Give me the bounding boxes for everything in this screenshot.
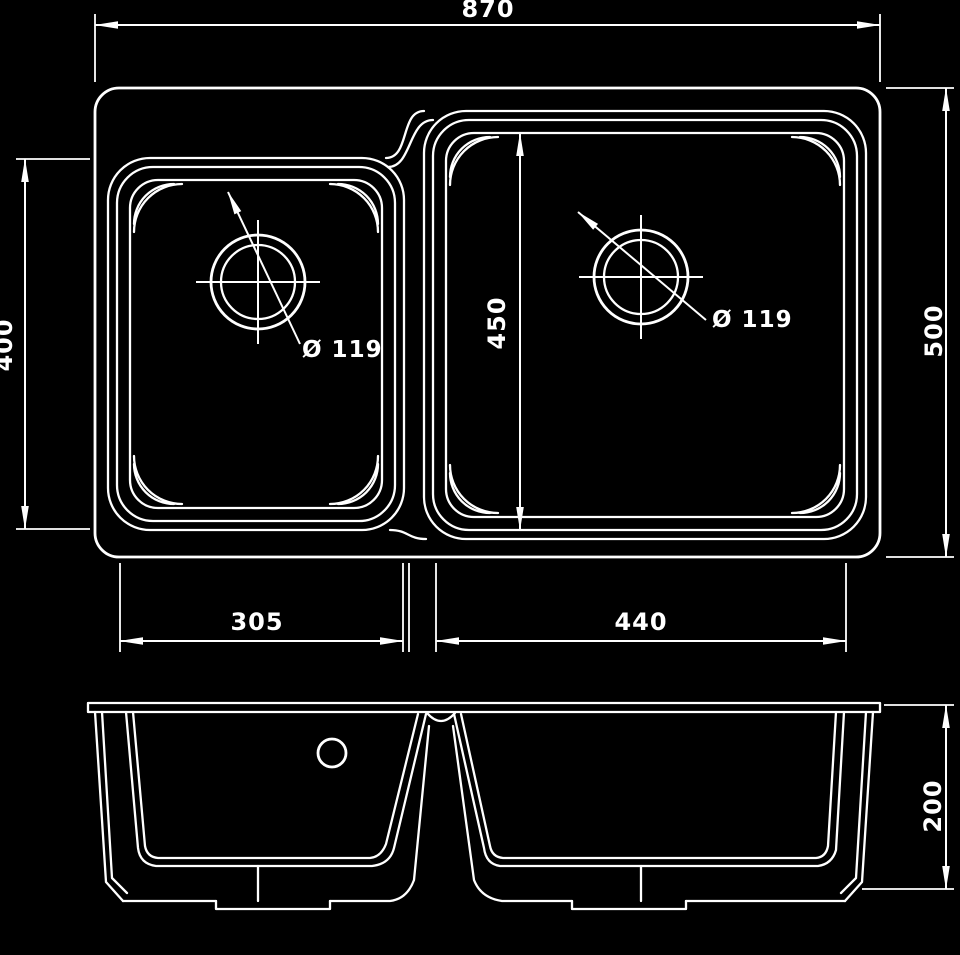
dim-left-bowl-length-value: 400 — [0, 318, 18, 371]
dim-overall-depth: 500 — [886, 88, 954, 557]
dim-height-value: 200 — [919, 779, 947, 832]
drawing-canvas: Ø 119 Ø 119 870 400 450 — [0, 0, 960, 955]
right-drain-diameter-label: Ø 119 — [712, 307, 793, 333]
dim-right-bowl-length-value: 450 — [483, 296, 511, 349]
right-drain-crosshair — [579, 215, 703, 339]
dim-bowl-widths-extensions — [120, 563, 846, 652]
dim-left-bowl-length-extensions — [16, 159, 90, 529]
left-drain-diameter-label: Ø 119 — [302, 337, 383, 363]
top-view: Ø 119 Ø 119 870 400 450 — [0, 0, 954, 652]
dim-overall-depth-value: 500 — [920, 304, 948, 357]
sink-technical-drawing: Ø 119 Ø 119 870 400 450 — [0, 0, 960, 955]
front-divider-dip — [427, 713, 455, 721]
dim-right-bowl-length: 450 — [483, 133, 520, 530]
dim-left-bowl-length: 400 — [0, 159, 90, 529]
front-outer-walls — [95, 712, 873, 901]
front-drain-hole — [318, 739, 346, 767]
front-right-bowl-profile — [454, 712, 844, 866]
dim-right-bowl-width-value: 440 — [614, 608, 667, 636]
dim-left-bowl-width-value: 305 — [230, 608, 283, 636]
left-drain-leader — [228, 192, 300, 344]
dim-overall-width: 870 — [95, 0, 880, 82]
left-drain: Ø 119 — [196, 192, 383, 363]
left-drain-crosshair — [196, 220, 320, 344]
front-view: 200 — [88, 703, 954, 909]
front-drain-bosses — [216, 866, 686, 909]
bowl-transition-curves — [386, 111, 433, 539]
front-left-bowl-profile — [126, 712, 426, 866]
dim-height: 200 — [862, 705, 954, 889]
dim-overall-width-value: 870 — [461, 0, 514, 23]
dim-bowl-widths: 305 440 — [120, 563, 846, 652]
right-drain: Ø 119 — [578, 212, 793, 339]
front-rim — [88, 703, 880, 712]
